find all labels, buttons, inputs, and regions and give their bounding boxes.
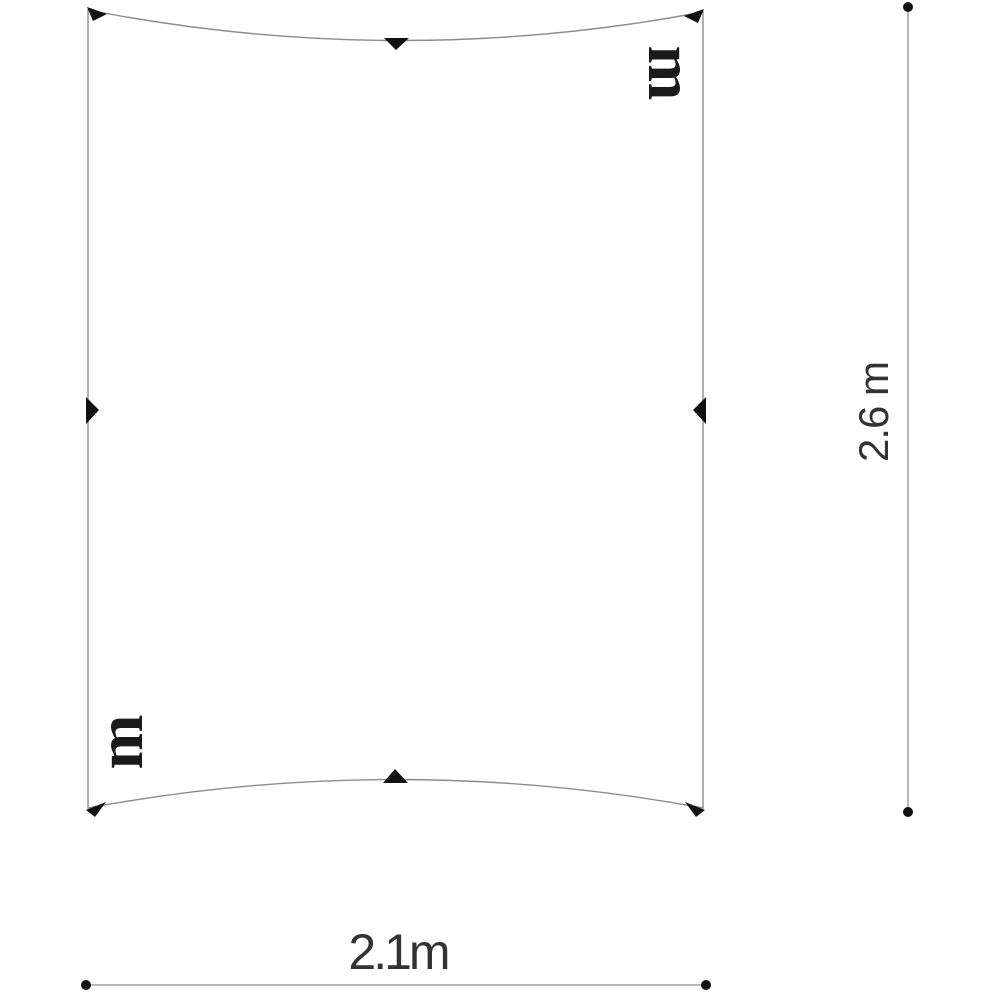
- corner-marker-bottom-left-icon: [86, 802, 106, 817]
- corner-marker-top-right-icon: [684, 9, 704, 23]
- height-dimension-label: 2.6 m: [850, 362, 898, 462]
- edge-arrow-top-icon: [384, 38, 409, 50]
- edge-arrow-right-icon: [693, 397, 706, 424]
- diagram-canvas: m m 2.6 m 2.1m: [0, 0, 1000, 1000]
- width-dimension-label: 2.1m: [348, 923, 447, 981]
- fabric-mark-bottom-left: m: [83, 715, 159, 770]
- height-dimension-end-dot-top: [903, 2, 913, 12]
- corner-marker-bottom-right-icon: [685, 802, 705, 817]
- edge-arrow-left-icon: [86, 397, 99, 424]
- width-dimension-end-dot-right: [701, 980, 711, 990]
- corner-marker-top-left-icon: [87, 7, 107, 21]
- height-dimension-end-dot-bottom: [903, 807, 913, 817]
- fabric-mark-top-right: m: [632, 46, 708, 101]
- width-dimension-end-dot-left: [81, 980, 91, 990]
- edge-arrow-bottom-icon: [383, 769, 408, 783]
- tarp-outline: [88, 10, 703, 808]
- tarp-dimension-drawing: [0, 0, 1000, 1000]
